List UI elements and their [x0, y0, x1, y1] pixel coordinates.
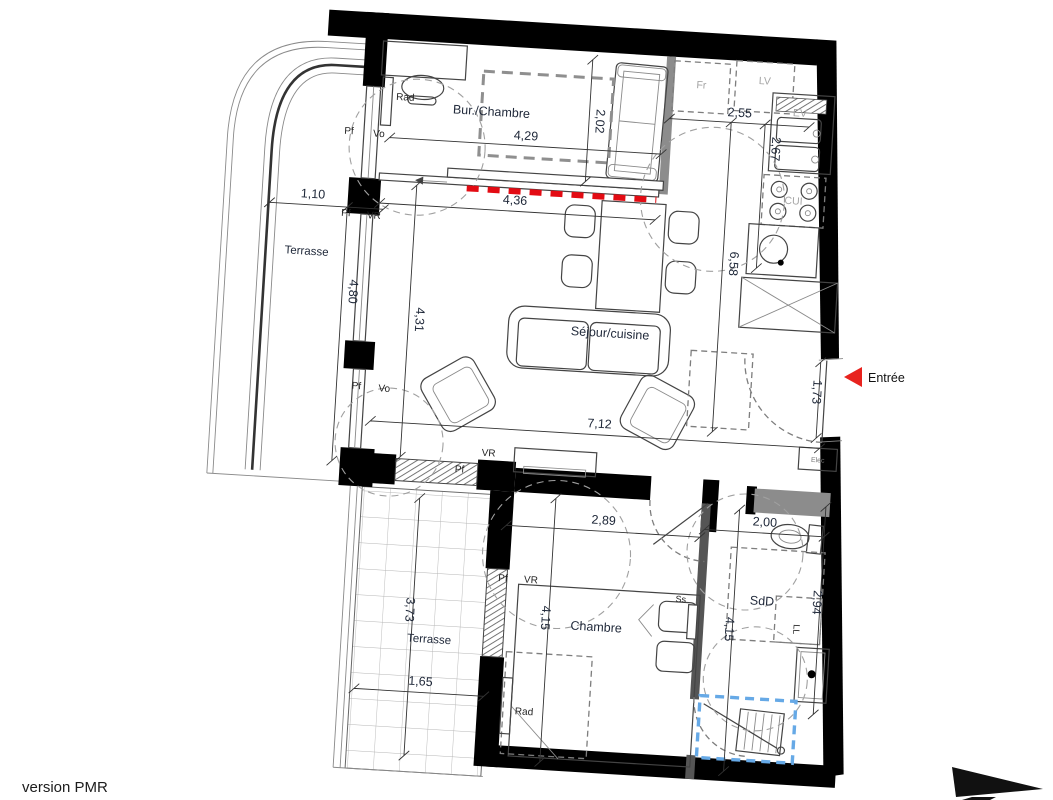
dim-label: 3,73	[402, 597, 417, 622]
label-pf2: Pf	[341, 208, 351, 220]
label-fridge: Fr	[696, 79, 707, 92]
bathroom-fixtures	[691, 516, 837, 761]
chair	[564, 204, 596, 238]
label-vo1: Vo	[373, 129, 386, 141]
label-elec: Elec	[811, 457, 826, 465]
dim-label: 6,58	[726, 251, 741, 276]
room-label-terrasse-top: Terrasse	[284, 244, 329, 259]
dim-label: 4,31	[412, 307, 427, 332]
terrace-top-railing	[207, 36, 371, 482]
dim-label: 2,89	[591, 513, 616, 528]
label-pf3: Pf	[351, 381, 361, 393]
label-vo2: Vo	[378, 383, 391, 395]
dim-label: 4,80	[345, 279, 360, 304]
armchair-left	[417, 353, 499, 435]
room-label-sejour: Séjour/cuisine	[571, 324, 650, 343]
dim-label: 4,36	[502, 193, 527, 208]
towel-radiator	[736, 709, 784, 756]
label-sink: EV	[793, 107, 808, 120]
label-ll: LL	[791, 624, 802, 635]
chair	[665, 261, 697, 295]
dim-label: 1,10	[300, 186, 325, 201]
shelf-ss	[687, 605, 698, 639]
entry-label: Entrée	[868, 371, 905, 385]
label-pf1: Pf	[344, 126, 354, 138]
version-label: version PMR	[22, 779, 108, 796]
floor-plan: 4,29 2,02 2,55 2,67 1,10 4,80 4,36 4,31 …	[189, 4, 888, 799]
dim-label: 7,12	[587, 416, 612, 431]
desk	[381, 41, 467, 80]
dim-label: 4,15	[538, 605, 553, 630]
kitchen-fixtures	[665, 57, 837, 229]
water-heater	[746, 224, 819, 278]
label-rad-bur: Rad	[396, 92, 415, 104]
label-dishwasher: LV	[758, 75, 771, 88]
north-arrow-icon	[952, 767, 1043, 797]
entry-arrow-icon	[844, 367, 862, 387]
shutter-window-sejour	[395, 459, 478, 486]
terrace-bottom	[333, 486, 500, 777]
entry-door	[740, 353, 847, 444]
dimension-lines	[231, 35, 858, 785]
dim-label: 1,73	[809, 380, 824, 405]
label-vr2: VR	[481, 448, 496, 460]
dim-label: 2,00	[752, 514, 777, 529]
armchair-right	[617, 372, 698, 453]
floor-plan-canvas: 4,29 2,02 2,55 2,67 1,10 4,80 4,36 4,31 …	[0, 0, 1053, 800]
pillow	[656, 641, 696, 673]
label-pf5: Pf	[498, 573, 508, 585]
dim-label: 2,02	[592, 109, 607, 134]
cupboard-dashed	[687, 350, 754, 430]
label-hob: CUI	[784, 195, 803, 208]
room-label-sdd: SdD	[749, 593, 774, 608]
dim-label: 2,94	[809, 590, 824, 615]
room-label-chambre: Chambre	[570, 618, 622, 635]
dim-label: 2,55	[727, 105, 752, 120]
dim-label: 2,67	[768, 137, 783, 162]
label-vr1: VR	[367, 210, 382, 222]
shower-dashed	[726, 547, 825, 645]
wc	[770, 521, 824, 555]
chair	[668, 211, 700, 245]
label-pf4: Pf	[454, 464, 464, 476]
dim-label: 4,29	[513, 128, 538, 143]
dining-table	[596, 201, 666, 313]
label-ss: Ss	[675, 594, 687, 605]
chair	[561, 254, 593, 288]
dim-label: 4,15	[722, 617, 737, 642]
room-label-bur-chambre: Bur./Chambre	[453, 102, 531, 121]
dim-label: 1,65	[408, 674, 433, 689]
label-vr3: VR	[524, 575, 539, 587]
label-rad-chambre: Rad	[515, 706, 534, 718]
